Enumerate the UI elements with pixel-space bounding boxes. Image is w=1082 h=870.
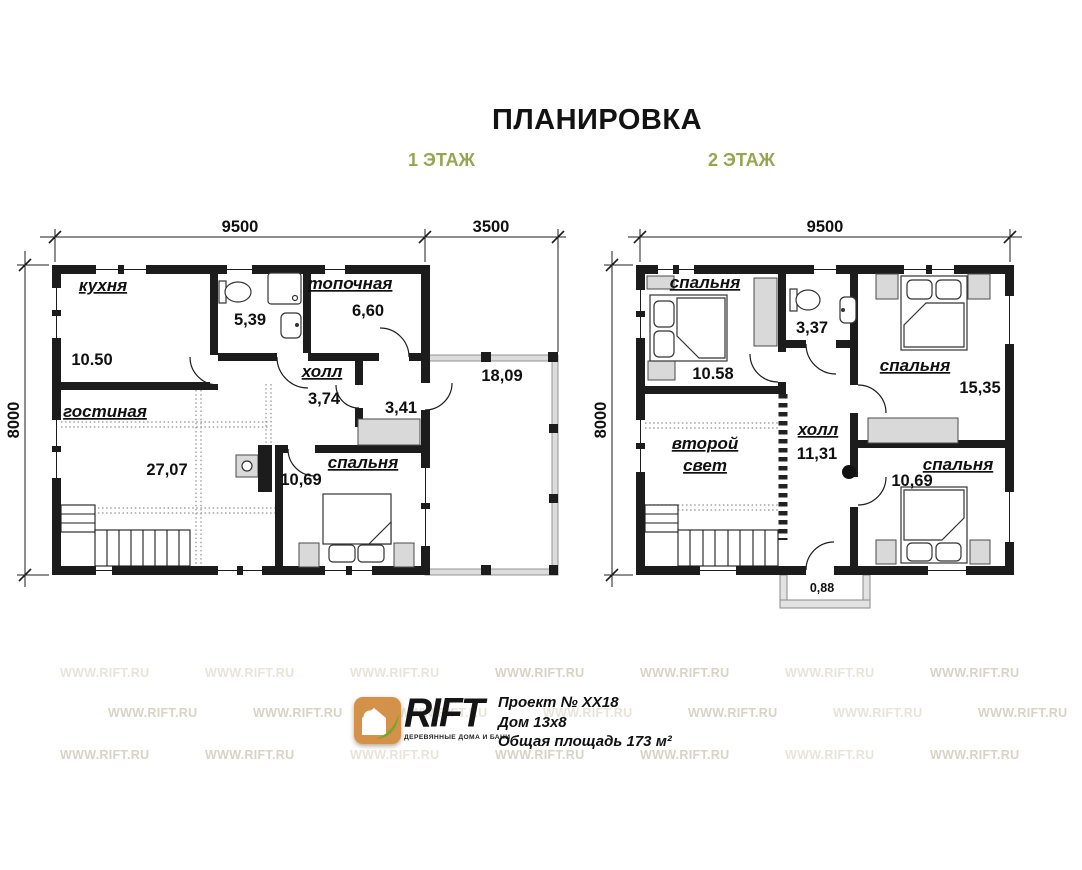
bedroom2-label: спальня <box>880 356 950 375</box>
dim-8000-floor2: 8000 <box>592 402 610 439</box>
watermark-text: WWW.RIFT.RU <box>688 706 777 720</box>
floorplan-page: ПЛАНИРОВКА 1 ЭТАЖ 2 ЭТАЖ 9500 3500 8000 <box>0 0 1082 870</box>
chimney-icon <box>842 465 856 479</box>
watermark-text: WWW.RIFT.RU <box>253 706 342 720</box>
watermark-text: WWW.RIFT.RU <box>785 666 874 680</box>
project-info: Проект № ХХ18 Дом 13х8 Общая площадь 173… <box>498 693 672 752</box>
hall1-area: 3,74 <box>308 390 341 408</box>
closet <box>358 419 420 445</box>
void-label-line2: свет <box>683 456 727 475</box>
terrace <box>425 352 558 575</box>
bedroom1-label: спальня <box>670 273 740 292</box>
dim-8000-floor1: 8000 <box>5 402 23 439</box>
hall2-label: холл <box>797 420 839 439</box>
bed-floor2-bedroom3 <box>876 487 990 564</box>
hall2-area: 11,31 <box>797 445 837 463</box>
watermark-text: WWW.RIFT.RU <box>205 748 294 762</box>
kitchen-area: 10.50 <box>71 351 112 369</box>
boiler-label: топочная <box>308 274 393 293</box>
toilet-icon <box>219 281 251 303</box>
watermark-text: WWW.RIFT.RU <box>350 748 439 762</box>
bedroom3-area: 10,69 <box>891 472 932 490</box>
watermark-text: WWW.RIFT.RU <box>60 748 149 762</box>
watermark-text: WWW.RIFT.RU <box>978 706 1067 720</box>
project-total-area: Общая площадь 173 м² <box>498 732 672 752</box>
sink-icon <box>281 313 301 338</box>
watermark-text: WWW.RIFT.RU <box>833 706 922 720</box>
terrace-area: 18,09 <box>481 367 522 385</box>
hall1-label: холл <box>301 362 343 381</box>
rift-logo-icon <box>354 697 401 744</box>
dim-9500-floor1: 9500 <box>222 218 259 236</box>
dim-3500-floor1: 3500 <box>473 218 510 236</box>
toilet2-icon <box>790 289 820 311</box>
watermark-text: WWW.RIFT.RU <box>930 666 1019 680</box>
sink2-icon <box>840 297 856 323</box>
watermark-text: WWW.RIFT.RU <box>108 706 197 720</box>
bed-floor1 <box>299 494 414 567</box>
fireplace <box>236 445 272 492</box>
living-label: гостиная <box>63 402 147 421</box>
floor2-plan: 9500 8000 <box>592 218 1022 608</box>
kitchen-label: кухня <box>79 276 127 295</box>
floor2-stairs <box>645 505 778 566</box>
bedroom3-label: спальня <box>923 455 993 474</box>
shower-icon <box>268 273 301 304</box>
logo-house-leaf-icon <box>354 697 401 744</box>
living-area: 27,07 <box>146 461 187 479</box>
balcony-area: 0,88 <box>810 581 834 595</box>
boiler-area: 6,60 <box>352 302 384 320</box>
bedroom1f-label: спальня <box>328 453 398 472</box>
floor1-stairs <box>61 505 190 566</box>
project-number: Проект № ХХ18 <box>498 693 672 713</box>
watermark-text: WWW.RIFT.RU <box>785 748 874 762</box>
vestibule-area: 3,41 <box>385 399 417 417</box>
bedroom1-area: 10.58 <box>692 365 733 383</box>
watermark-text: WWW.RIFT.RU <box>495 666 584 680</box>
dim-9500-floor2: 9500 <box>807 218 844 236</box>
void-label-line1: второй <box>672 434 739 453</box>
bath1-area: 5,39 <box>234 311 266 329</box>
watermark-text: WWW.RIFT.RU <box>640 666 729 680</box>
bedroom2-area: 15,35 <box>959 379 1000 397</box>
watermark-text: WWW.RIFT.RU <box>350 666 439 680</box>
watermark-text: WWW.RIFT.RU <box>930 748 1019 762</box>
floor1-plan: 9500 3500 8000 <box>5 218 566 587</box>
watermark-text: WWW.RIFT.RU <box>205 666 294 680</box>
bath2-area: 3,37 <box>796 319 828 337</box>
watermark-text: WWW.RIFT.RU <box>60 666 149 680</box>
project-house-size: Дом 13х8 <box>498 713 672 733</box>
bedroom1f-area: 10,69 <box>280 471 321 489</box>
